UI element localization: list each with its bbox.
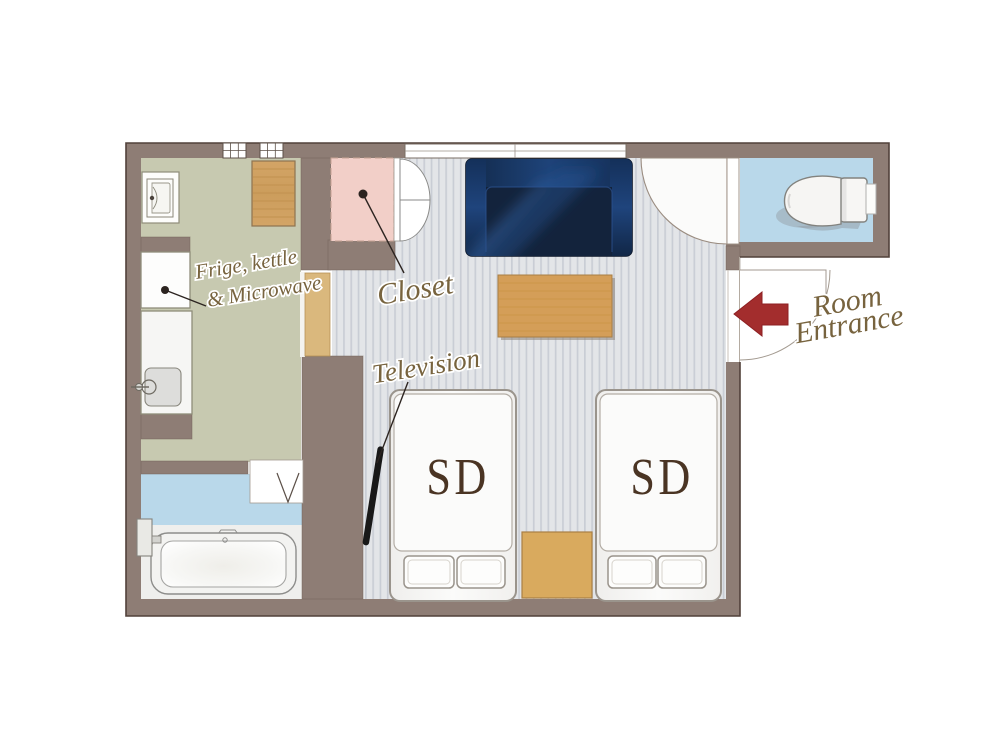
svg-text:SD: SD xyxy=(426,449,489,506)
svg-text:SD: SD xyxy=(630,449,693,506)
